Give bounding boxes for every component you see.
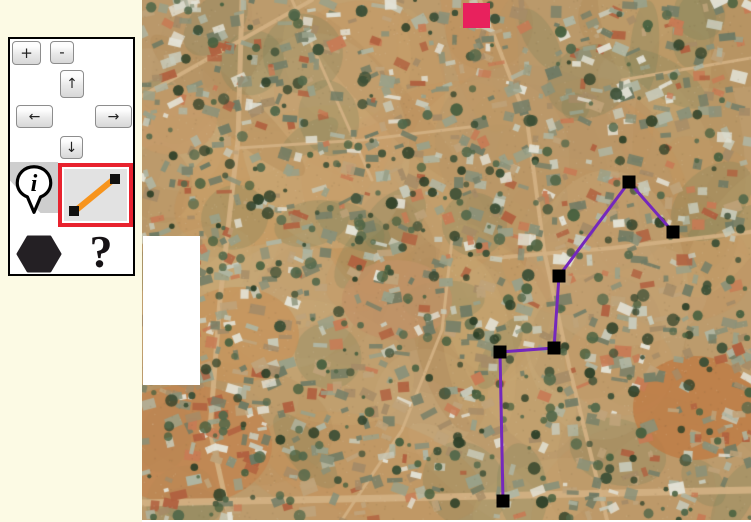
blank-tile-patch: [143, 236, 200, 385]
tool-draw-line[interactable]: [58, 163, 133, 227]
polyline-vertex-handle[interactable]: [497, 495, 510, 508]
gis-editor-app: { "app": { "background_color": "#FCFAE4"…: [0, 0, 751, 522]
polyline-vertex-handle[interactable]: [623, 176, 636, 189]
map-viewport[interactable]: [142, 0, 751, 522]
vector-overlay: [142, 0, 751, 522]
polyline-vertex-handle[interactable]: [548, 342, 561, 355]
tool-info-marker[interactable]: i: [10, 162, 58, 213]
pan-up-button[interactable]: ↑: [60, 70, 84, 98]
polyline-vertex-handle[interactable]: [494, 346, 507, 359]
help-button[interactable]: ?: [80, 227, 122, 277]
info-pin-icon: i: [14, 164, 54, 216]
pan-down-button[interactable]: ↓: [60, 136, 83, 159]
drawn-polyline[interactable]: [500, 182, 673, 501]
draw-line-icon: [64, 169, 127, 221]
pan-right-button[interactable]: →: [95, 105, 132, 128]
tool-draw-polygon[interactable]: [16, 235, 62, 273]
polyline-vertex-handle[interactable]: [553, 270, 566, 283]
map-marker-square[interactable]: [463, 3, 490, 28]
pan-left-button[interactable]: ←: [16, 105, 53, 128]
svg-text:i: i: [31, 170, 38, 197]
toolbar-panel: + - ↑ ← → ↓ i ?: [8, 37, 135, 276]
zoom-in-button[interactable]: +: [12, 41, 41, 65]
polyline-vertex-handle[interactable]: [667, 226, 680, 239]
zoom-out-button[interactable]: -: [50, 41, 74, 64]
hexagon-icon: [16, 235, 62, 273]
